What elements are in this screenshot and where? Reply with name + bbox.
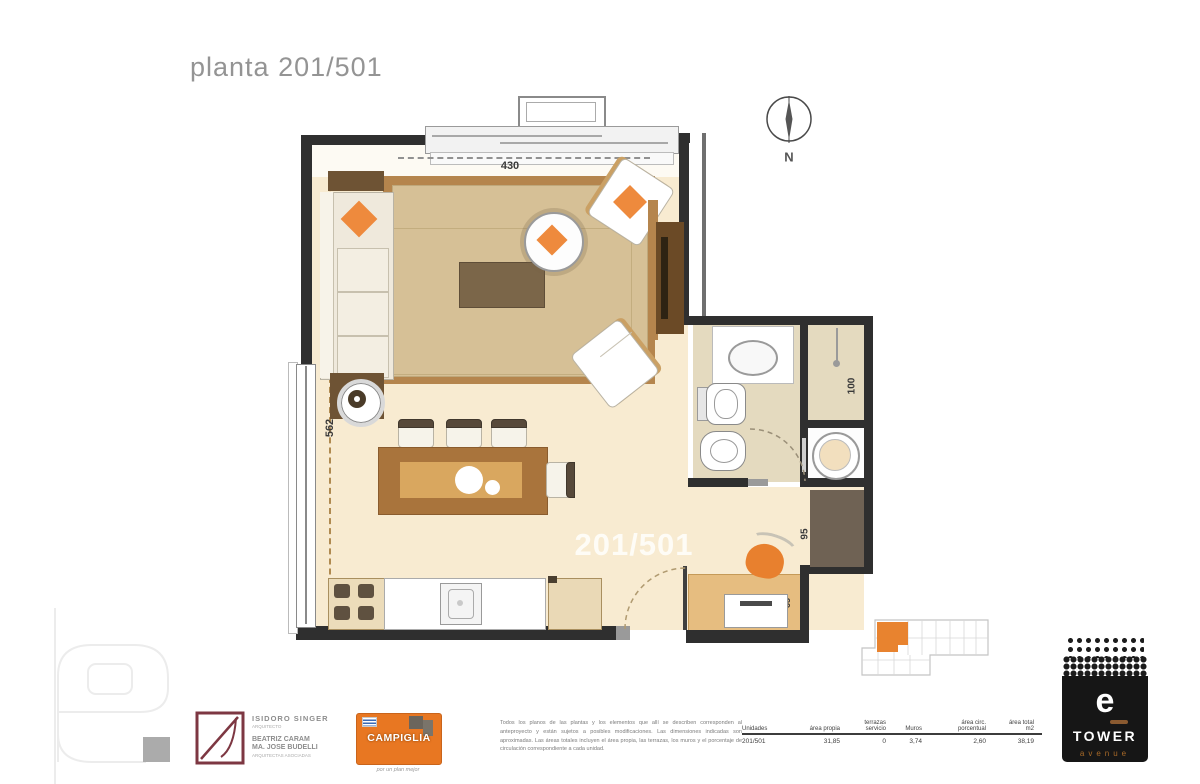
areas-table: Unidades área propia terrazas servicio M… [742,716,1042,745]
bathroom-door-arc [750,429,805,481]
architect-role: ARQUITECTO [252,724,362,729]
watermark-gray-square [143,737,170,762]
architect-logo [197,713,243,763]
etower-dot-pattern-sparse [1066,636,1144,658]
areas-table-header-row: Unidades área propia terrazas servicio M… [742,716,1042,732]
etower-logo: e TOWER avenue [1062,636,1148,762]
etower-e-mark: e [1062,682,1148,721]
campiglia-tagline: por un plan mejor [356,767,440,773]
architect-partner2: MA. JOSE BUDELLI [252,744,362,751]
col-header-area-total: área total m2 [986,716,1034,732]
architect-name: ISIDORO SINGER [252,714,362,723]
cell-unidad: 201/501 [742,735,788,745]
cell-area-circ: 2,60 [922,735,986,745]
campiglia-building-silhouette [409,716,423,729]
architect-credits: ISIDORO SINGER ARQUITECTO BEATRIZ CARAM … [252,714,362,758]
col-header-muros: Muros [886,716,922,732]
disclaimer-text: Todos los planos de las plantas y los el… [500,719,742,754]
col-header-terrazas: terrazas servicio [840,716,886,732]
etower-swoosh [1110,720,1128,724]
col-header-area-propia: área propia [788,716,840,732]
etower-avenue-text: avenue [1062,749,1148,758]
floor-plan-sheet: planta 201/501 430 562 200 175 100 95 65… [0,0,1200,784]
cell-terrazas: 0 [840,735,886,745]
cell-area-total: 38,19 [986,735,1034,745]
col-header-area-circ: área circ. porcentual [922,716,986,732]
etower-dot-pattern-dense [1063,656,1147,678]
entry-door-arc [625,568,686,629]
architect-partner1: BEATRIZ CARAM [252,736,362,743]
areas-table-value-row: 201/501 31,85 0 3,74 2,60 38,19 [742,735,1042,745]
etower-tower-text: TOWER [1062,728,1148,744]
cell-muros: 3,74 [886,735,922,745]
key-plan [862,620,988,675]
campiglia-name: CAMPIGLIA [357,732,441,744]
cell-area-propia: 31,85 [788,735,840,745]
campiglia-flag [362,717,377,727]
col-header-unidades: Unidades [742,716,788,732]
plan-overlay-graphics [0,0,1200,784]
campiglia-logo: CAMPIGLIA [356,713,442,765]
architect-role2: ARQUITECTAS ASOCIADAS [252,753,362,758]
